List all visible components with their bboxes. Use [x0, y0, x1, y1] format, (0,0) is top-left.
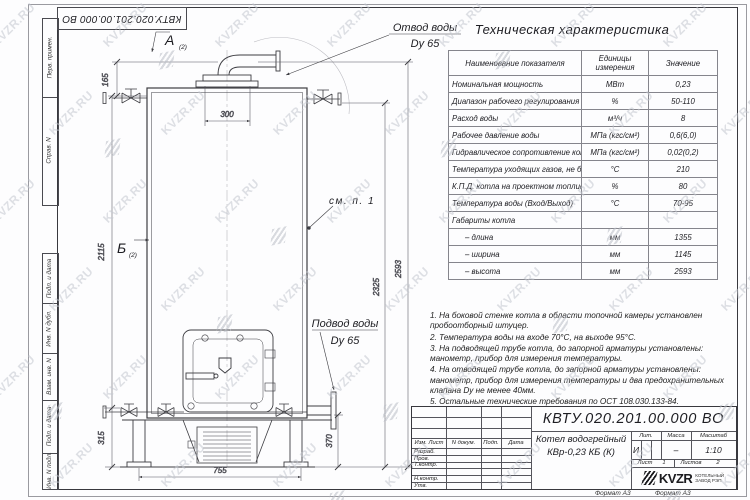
table-row: Гидравлическое сопротивление котлаМПа (к…: [449, 144, 718, 161]
table-row: Номинальная мощностьМВт0,23: [449, 76, 718, 93]
row-name: Гидравлическое сопротивление котла: [449, 144, 582, 161]
row-value: 2593: [649, 263, 718, 280]
top-doc-number-box: КВТУ.020.201.00.000 ВО: [57, 7, 187, 30]
row-value: 1355: [649, 229, 718, 246]
title-block: КВТУ.020.201.00.000 ВО Котел водогрейный…: [411, 406, 737, 490]
col-header-value: Значение: [649, 51, 718, 76]
sheet-value: 1: [658, 459, 670, 467]
table-row: Расход водым³/ч8: [449, 110, 718, 127]
mass-value: –: [661, 440, 691, 459]
row-name: – высота: [449, 263, 582, 280]
row-value: 8: [649, 110, 718, 127]
dim-2115: 2115: [97, 243, 106, 262]
row-units: мм: [582, 229, 649, 246]
note-4: 4. На отводящей трубе котла, до запорной…: [430, 365, 736, 396]
dim-300: 300: [220, 110, 234, 119]
scale-value: 1:10: [691, 440, 736, 459]
row-name: Диапазон рабочего регулирования: [449, 93, 582, 110]
format-note-left: Формат А3: [595, 490, 631, 497]
row-units: МВт: [582, 76, 649, 93]
furnace-door: [183, 330, 275, 412]
role-razrab: Разраб.: [412, 448, 448, 455]
row-name: Расход воды: [449, 110, 582, 127]
row-units: %: [582, 178, 649, 195]
table-row: Температура уходящих газов, не более°С21…: [449, 161, 718, 178]
table-row: – длинамм1355: [449, 229, 718, 246]
row-units: °С: [582, 195, 649, 212]
col-header-name: Наименование показателя: [449, 51, 582, 76]
valve-icon: [276, 404, 292, 417]
lit-label: Лит.: [631, 431, 661, 440]
row-name: Номинальная мощность: [449, 76, 582, 93]
inlet-label: Подвод воды: [312, 318, 379, 330]
row-units: МПа (кгс/см²): [582, 144, 649, 161]
sheets-label: Листов: [676, 459, 706, 467]
spec-table: Наименование показателя Единицы измерени…: [448, 50, 718, 280]
col-data: Дата: [501, 438, 531, 448]
technical-notes: 1. На боковой стенке котла в области топ…: [430, 311, 736, 409]
row-units: мм: [582, 263, 649, 280]
row-value: 0,23: [649, 76, 718, 93]
company-name: КОТЕЛЬНЫЙ ЗАВОД РЭП: [695, 473, 724, 483]
row-units: мм: [582, 246, 649, 263]
row-value: 1145: [649, 246, 718, 263]
row-value: 0,02(0,2): [649, 144, 718, 161]
role-utv: Утв.: [412, 482, 448, 489]
company-logo: KVZR КОТЕЛЬНЫЙ ЗАВОД РЭП: [631, 467, 736, 489]
valve-icon: [121, 404, 137, 417]
view-a-sub: (2): [179, 44, 187, 51]
title-doc-number: КВТУ.020.201.00.000 ВО: [531, 407, 736, 431]
valve-icon: [314, 90, 332, 104]
table-row: Рабочее давление водыМПа (кгс/см²)0,6(6,…: [449, 127, 718, 144]
dim-755: 755: [213, 466, 227, 475]
table-row: – высотамм2593: [449, 263, 718, 280]
row-name: – ширина: [449, 246, 582, 263]
row-value: [649, 212, 718, 229]
swing-arc: [254, 37, 349, 114]
row-name: – длина: [449, 229, 582, 246]
row-name: Температура уходящих газов, не более: [449, 161, 582, 178]
dim-2325: 2325: [372, 278, 381, 297]
dim-165: 165: [101, 73, 110, 87]
outlet-size-label: Dy 65: [411, 38, 441, 50]
role-tkontr: Т.контр.: [412, 462, 448, 468]
note-1: 1. На боковой стенке котла в области топ…: [430, 311, 736, 332]
note-2: 2. Температура воды на входе 70°С, на вы…: [430, 333, 736, 343]
sheet-label: Лист: [633, 459, 657, 467]
col-n-dokum: N докум.: [446, 438, 481, 448]
spec-table-title: Техническая характеристика: [448, 22, 696, 37]
company-name-line2: ЗАВОД РЭП: [695, 478, 724, 483]
role-nkontr: Н.контр.: [412, 475, 448, 482]
spec-header-row: Наименование показателя Единицы измерени…: [449, 51, 718, 76]
table-row: Температура воды (Вход/Выход)°С70-95: [449, 195, 718, 212]
product-name-line2: КВр-0,23 КБ (К): [531, 446, 631, 459]
dim-370: 370: [325, 434, 334, 448]
table-row: Диапазон рабочего регулирования%50-110: [449, 93, 718, 110]
scale-label: Масштаб: [691, 431, 736, 440]
row-value: 70-95: [649, 195, 718, 212]
format-note-right: Формат А3: [655, 490, 691, 497]
kvzr-logo-text: KVZR: [659, 471, 692, 486]
row-units: м³/ч: [582, 110, 649, 127]
grate: [183, 420, 272, 463]
row-name: Рабочее давление воды: [449, 127, 582, 144]
row-name: Температура воды (Вход/Выход): [449, 195, 582, 212]
view-b-label: Б: [117, 240, 126, 256]
row-value: 80: [649, 178, 718, 195]
mass-label: Масса: [661, 431, 691, 440]
kvzr-logo-icon: [641, 471, 657, 485]
row-value: 50-110: [649, 93, 718, 110]
top-doc-number: КВТУ.020.201.00.000 ВО: [62, 13, 182, 24]
row-value: 0,6(6,0): [649, 127, 718, 144]
row-units: %: [582, 93, 649, 110]
row-name: К.П.Д. котла на проектном топливе: [449, 178, 582, 195]
table-row: К.П.Д. котла на проектном топливе%80: [449, 178, 718, 195]
dim-2593: 2593: [394, 260, 403, 279]
drawing-sheet: 300 755 165 2115 315 370 2325 2593 Отвод…: [0, 0, 750, 500]
product-name-line1: Котел водогрейный: [531, 433, 631, 446]
row-units: [582, 212, 649, 229]
sheets-value: 2: [708, 459, 728, 467]
role-prov: Пров.: [412, 455, 448, 462]
table-row: Габариты котла: [449, 212, 718, 229]
row-name: Габариты котла: [449, 212, 582, 229]
inlet-size-label: Dy 65: [331, 335, 361, 347]
lit-value: И: [631, 440, 641, 459]
col-izm-list: Изм. Лист: [412, 438, 446, 448]
table-row: – ширинамм1145: [449, 246, 718, 263]
row-units: МПа (кгс/см²): [582, 127, 649, 144]
valve-icon: [158, 404, 174, 417]
col-podp: Подп.: [481, 438, 501, 448]
see-note-label: см. п. 1: [329, 196, 375, 207]
product-name: Котел водогрейный КВр-0,23 КБ (К): [531, 433, 631, 473]
water-outlet-elbow: [196, 37, 349, 114]
note-3: 3. На подводящей трубе котла, до запорно…: [430, 344, 736, 365]
row-units: °С: [582, 161, 649, 178]
col-header-units: Единицы измерения: [582, 51, 649, 76]
row-value: 210: [649, 161, 718, 178]
water-inlet-flange: [307, 392, 336, 429]
dim-315: 315: [97, 431, 106, 445]
valves: [103, 89, 341, 418]
view-a-label: А: [164, 32, 174, 48]
view-b-sub: (2): [129, 252, 137, 259]
